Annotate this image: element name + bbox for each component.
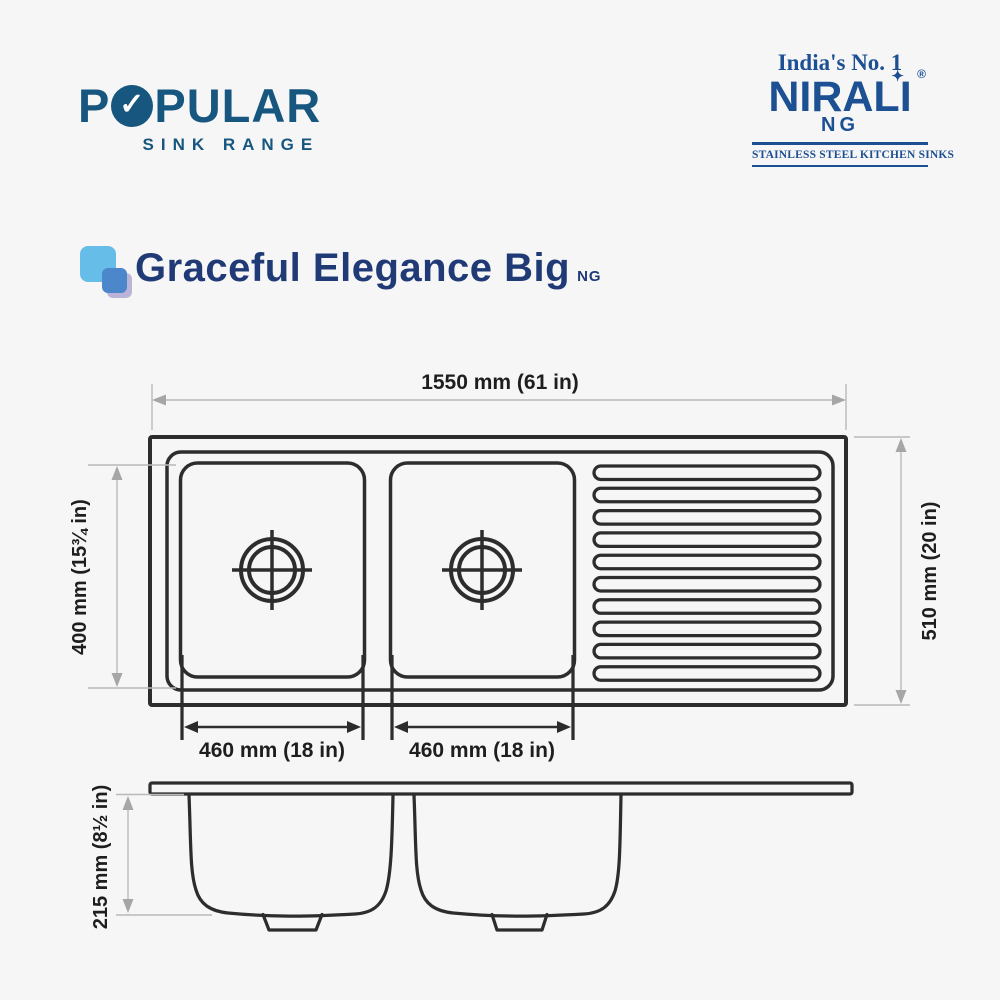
dimension-bowl-depth: 215 mm (8½ in) [90,785,212,930]
overall-width-label: 1550 mm (61 in) [421,371,579,394]
sink-top-view [150,437,846,705]
sink-technical-drawing: 1550 mm (61 in) [0,0,1000,1000]
dimension-overall-depth: 510 mm (20 in) [854,437,941,705]
left-drain-icon [232,530,312,610]
right-bowl-width-label: 460 mm (18 in) [409,739,555,762]
dimension-overall-width: 1550 mm (61 in) [152,371,846,430]
left-bowl-width-label: 460 mm (18 in) [199,739,345,762]
drainboard-ribs [594,466,820,680]
bowl-depth-label: 215 mm (8½ in) [90,785,112,930]
sink-side-view [150,783,852,930]
side-view-right-bowl [414,795,621,916]
right-drain-icon [442,530,522,610]
dimension-bowl-widths: 460 mm (18 in) 460 mm (18 in) [182,655,573,762]
overall-depth-label: 510 mm (20 in) [919,502,941,641]
side-view-rim [150,783,852,794]
side-view-left-bowl [189,795,393,916]
dimension-bowl-front: 400 mm (15¾ in) [69,465,176,688]
bowl-front-label: 400 mm (15¾ in) [69,499,91,655]
